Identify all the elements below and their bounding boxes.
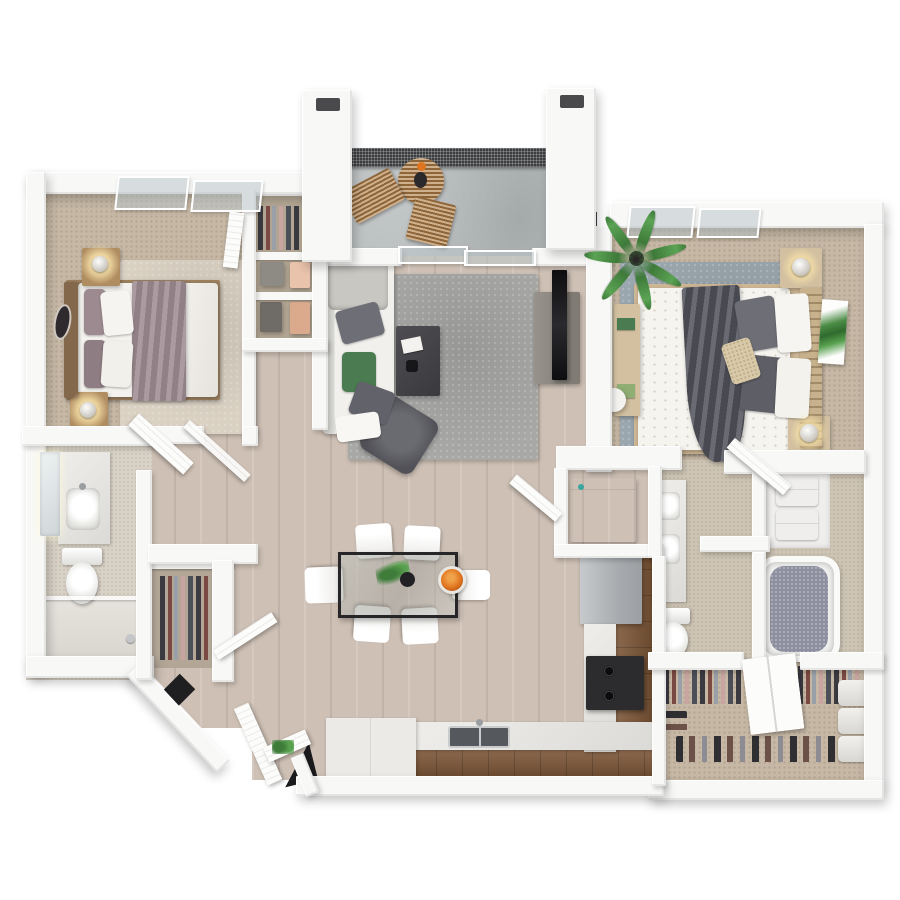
living-sofa-chaise-throw (328, 262, 388, 310)
shower-area (30, 600, 142, 660)
laundry-bathroom2-wall (648, 466, 662, 558)
bathtub-gray-mat (770, 566, 828, 652)
kitchen-sink (448, 726, 510, 748)
balcony-table-orange-cup (417, 162, 426, 171)
tub-west-wall (752, 552, 766, 660)
kitchen-cooktop (586, 656, 644, 710)
bedroom1-lamp-top (92, 256, 108, 272)
bedroom2-pillow-white-2 (774, 357, 811, 419)
bathroom1-east-wall (136, 470, 152, 680)
bedroom1-east-wall (242, 190, 256, 440)
kitchen-end-cabinet-white (326, 718, 416, 778)
fridge (580, 552, 642, 624)
shower-glass-edge (30, 596, 142, 600)
walkin-closet-double-door (742, 653, 805, 735)
tv-screen (552, 270, 567, 380)
bathroom2-mid-horiz-wall (700, 536, 770, 552)
closet1-linen-box-2 (290, 302, 310, 334)
bedroom1-pillow-white-2 (100, 340, 133, 388)
closet1-south-wall (242, 338, 328, 352)
kitchen-cabinet-run-south (410, 748, 656, 778)
closet1-shelf-2 (256, 292, 314, 300)
palm-plant (584, 206, 688, 310)
bedroom2-window-2 (696, 208, 761, 238)
coffee-table-decor (406, 360, 418, 372)
dining-orange-bowl (438, 566, 466, 594)
bedroom2-lamp-bottom (800, 424, 818, 442)
bathroom2-closet-wall-right (800, 652, 884, 670)
bedroom1-lamp-bottom (80, 402, 96, 418)
bedroom1-window-1 (114, 176, 190, 210)
bedroom1-pillow-white-1 (100, 290, 134, 337)
bedroom2-pillow-white-1 (774, 293, 812, 353)
bedroom2-south-wall-left (556, 446, 682, 470)
entry-shelf-plant (272, 740, 294, 754)
balcony-pillar-left (302, 90, 352, 262)
coat-niche-clothes (160, 576, 208, 660)
closet2-shoe-row (676, 736, 836, 762)
bottom-wall-kitchen (296, 776, 664, 796)
floorplan-canvas (0, 0, 900, 900)
bathroom1-mirror-lit (40, 452, 60, 536)
kitchen-counter-south (410, 722, 656, 750)
linen-towel-2 (776, 510, 818, 540)
balcony-glass-slider-1 (398, 246, 468, 264)
bedroom1-headboard (64, 282, 78, 398)
closet2-hanging-clothes-left (664, 666, 744, 704)
bedroom2-desk-books-green (617, 318, 635, 330)
bedroom2-lamp-top (792, 258, 810, 276)
kitchen-faucet (476, 719, 483, 726)
coat-niche-east-wall (212, 560, 234, 682)
balcony-table-kettle (414, 172, 427, 188)
balcony-pillar-right-slot (560, 95, 584, 108)
kitchen-east-wall (652, 556, 666, 786)
closet1-linen-box-1 (290, 262, 310, 288)
bottom-wall-closet (648, 780, 884, 800)
bedroom2-wall-art (818, 299, 848, 365)
bathroom2-closet-wall-left (648, 652, 744, 670)
coat-niche-top-wall (148, 544, 258, 564)
balcony-pillar-left-slot (316, 98, 340, 111)
right-wall (864, 224, 884, 784)
dining-centerpiece-vase (400, 572, 415, 587)
left-wall (26, 172, 46, 672)
bedroom1-mauve-throw (132, 281, 186, 401)
washer-indicator (578, 484, 584, 490)
bedroom1-window-2 (190, 180, 263, 212)
bedroom1-door-stub (242, 426, 258, 446)
shower-head (126, 634, 135, 643)
closet1-item-gray-1 (260, 262, 284, 286)
closet1-item-gray-2 (260, 302, 282, 332)
balcony-glass-slider-2 (464, 250, 536, 266)
bathroom1-sink (66, 488, 100, 530)
bathroom1-faucet (79, 483, 86, 490)
balcony-railing (350, 148, 548, 167)
